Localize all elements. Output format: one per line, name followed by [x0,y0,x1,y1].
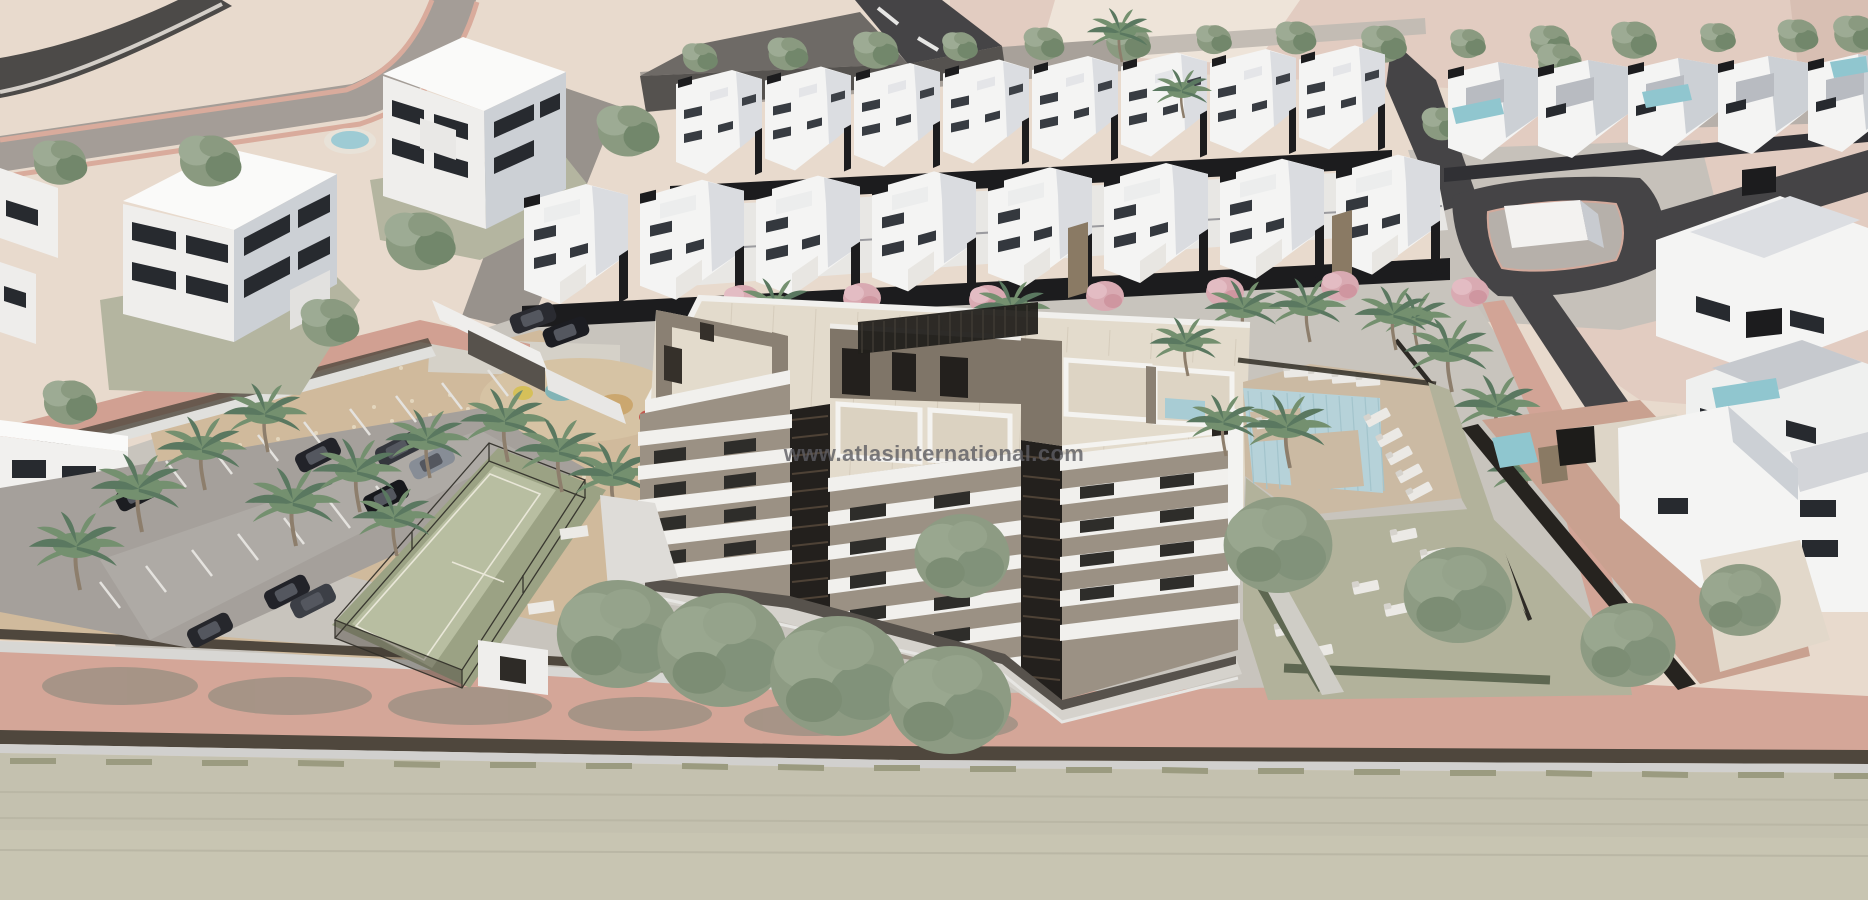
svg-text:www.atlasinternational.com: www.atlasinternational.com [783,441,1085,466]
